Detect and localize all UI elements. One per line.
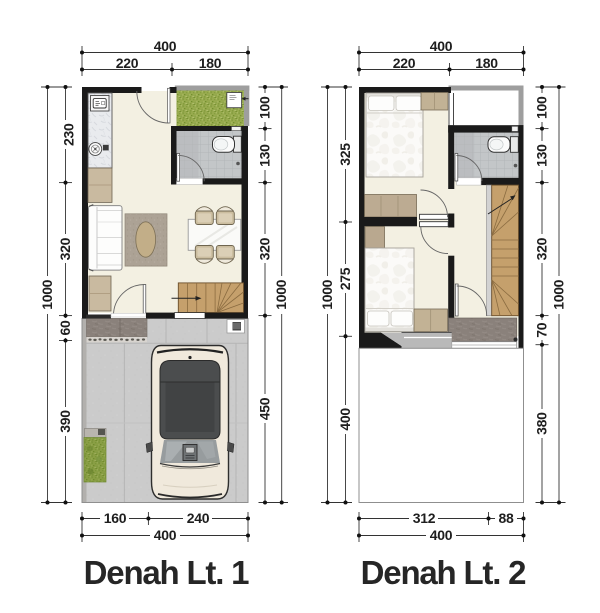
svg-text:320: 320 xyxy=(257,237,273,260)
svg-text:70: 70 xyxy=(534,322,550,337)
svg-text:230: 230 xyxy=(61,123,77,146)
svg-text:240: 240 xyxy=(187,510,210,526)
svg-text:130: 130 xyxy=(257,144,273,167)
svg-text:1000: 1000 xyxy=(39,279,55,309)
svg-text:1000: 1000 xyxy=(551,279,567,309)
svg-text:320: 320 xyxy=(534,237,550,260)
svg-text:180: 180 xyxy=(199,55,222,71)
svg-text:88: 88 xyxy=(499,510,514,526)
svg-text:275: 275 xyxy=(337,267,353,290)
svg-text:320: 320 xyxy=(57,237,73,260)
svg-text:312: 312 xyxy=(413,510,436,526)
svg-text:100: 100 xyxy=(534,96,550,119)
svg-text:400: 400 xyxy=(154,38,177,54)
svg-text:60: 60 xyxy=(57,320,73,335)
svg-text:1000: 1000 xyxy=(273,279,289,309)
svg-text:100: 100 xyxy=(257,96,273,119)
svg-text:1000: 1000 xyxy=(319,279,335,309)
svg-text:220: 220 xyxy=(116,55,139,71)
svg-text:400: 400 xyxy=(154,527,177,543)
svg-text:400: 400 xyxy=(430,38,453,54)
svg-text:400: 400 xyxy=(430,527,453,543)
svg-text:Denah Lt. 2: Denah Lt. 2 xyxy=(361,554,527,591)
svg-text:220: 220 xyxy=(393,55,416,71)
svg-text:380: 380 xyxy=(534,412,550,435)
svg-text:Denah Lt. 1: Denah Lt. 1 xyxy=(84,554,250,591)
svg-text:450: 450 xyxy=(257,397,273,420)
svg-text:325: 325 xyxy=(337,143,353,166)
svg-text:400: 400 xyxy=(337,408,353,431)
svg-text:390: 390 xyxy=(57,410,73,433)
svg-text:130: 130 xyxy=(534,144,550,167)
svg-text:180: 180 xyxy=(475,55,498,71)
svg-text:160: 160 xyxy=(104,510,127,526)
